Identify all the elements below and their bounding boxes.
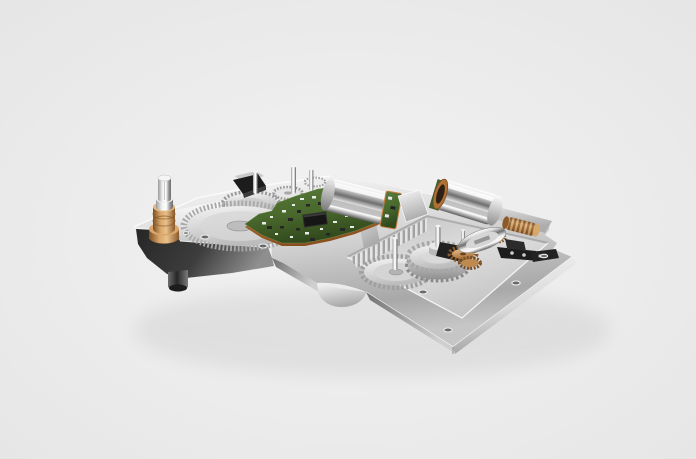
pin-1 xyxy=(253,171,258,194)
mounting-foot xyxy=(168,270,188,292)
gear-shaft-pin xyxy=(393,237,398,270)
product-render-canvas xyxy=(0,0,696,459)
output-shaft xyxy=(156,175,173,211)
product-render xyxy=(0,0,696,459)
bracket-screw-2 xyxy=(522,253,526,257)
small-disc-gear-b xyxy=(305,178,325,186)
pin-3 xyxy=(309,168,313,191)
bracket-screw-1 xyxy=(510,251,514,255)
pin-2 xyxy=(291,165,296,194)
